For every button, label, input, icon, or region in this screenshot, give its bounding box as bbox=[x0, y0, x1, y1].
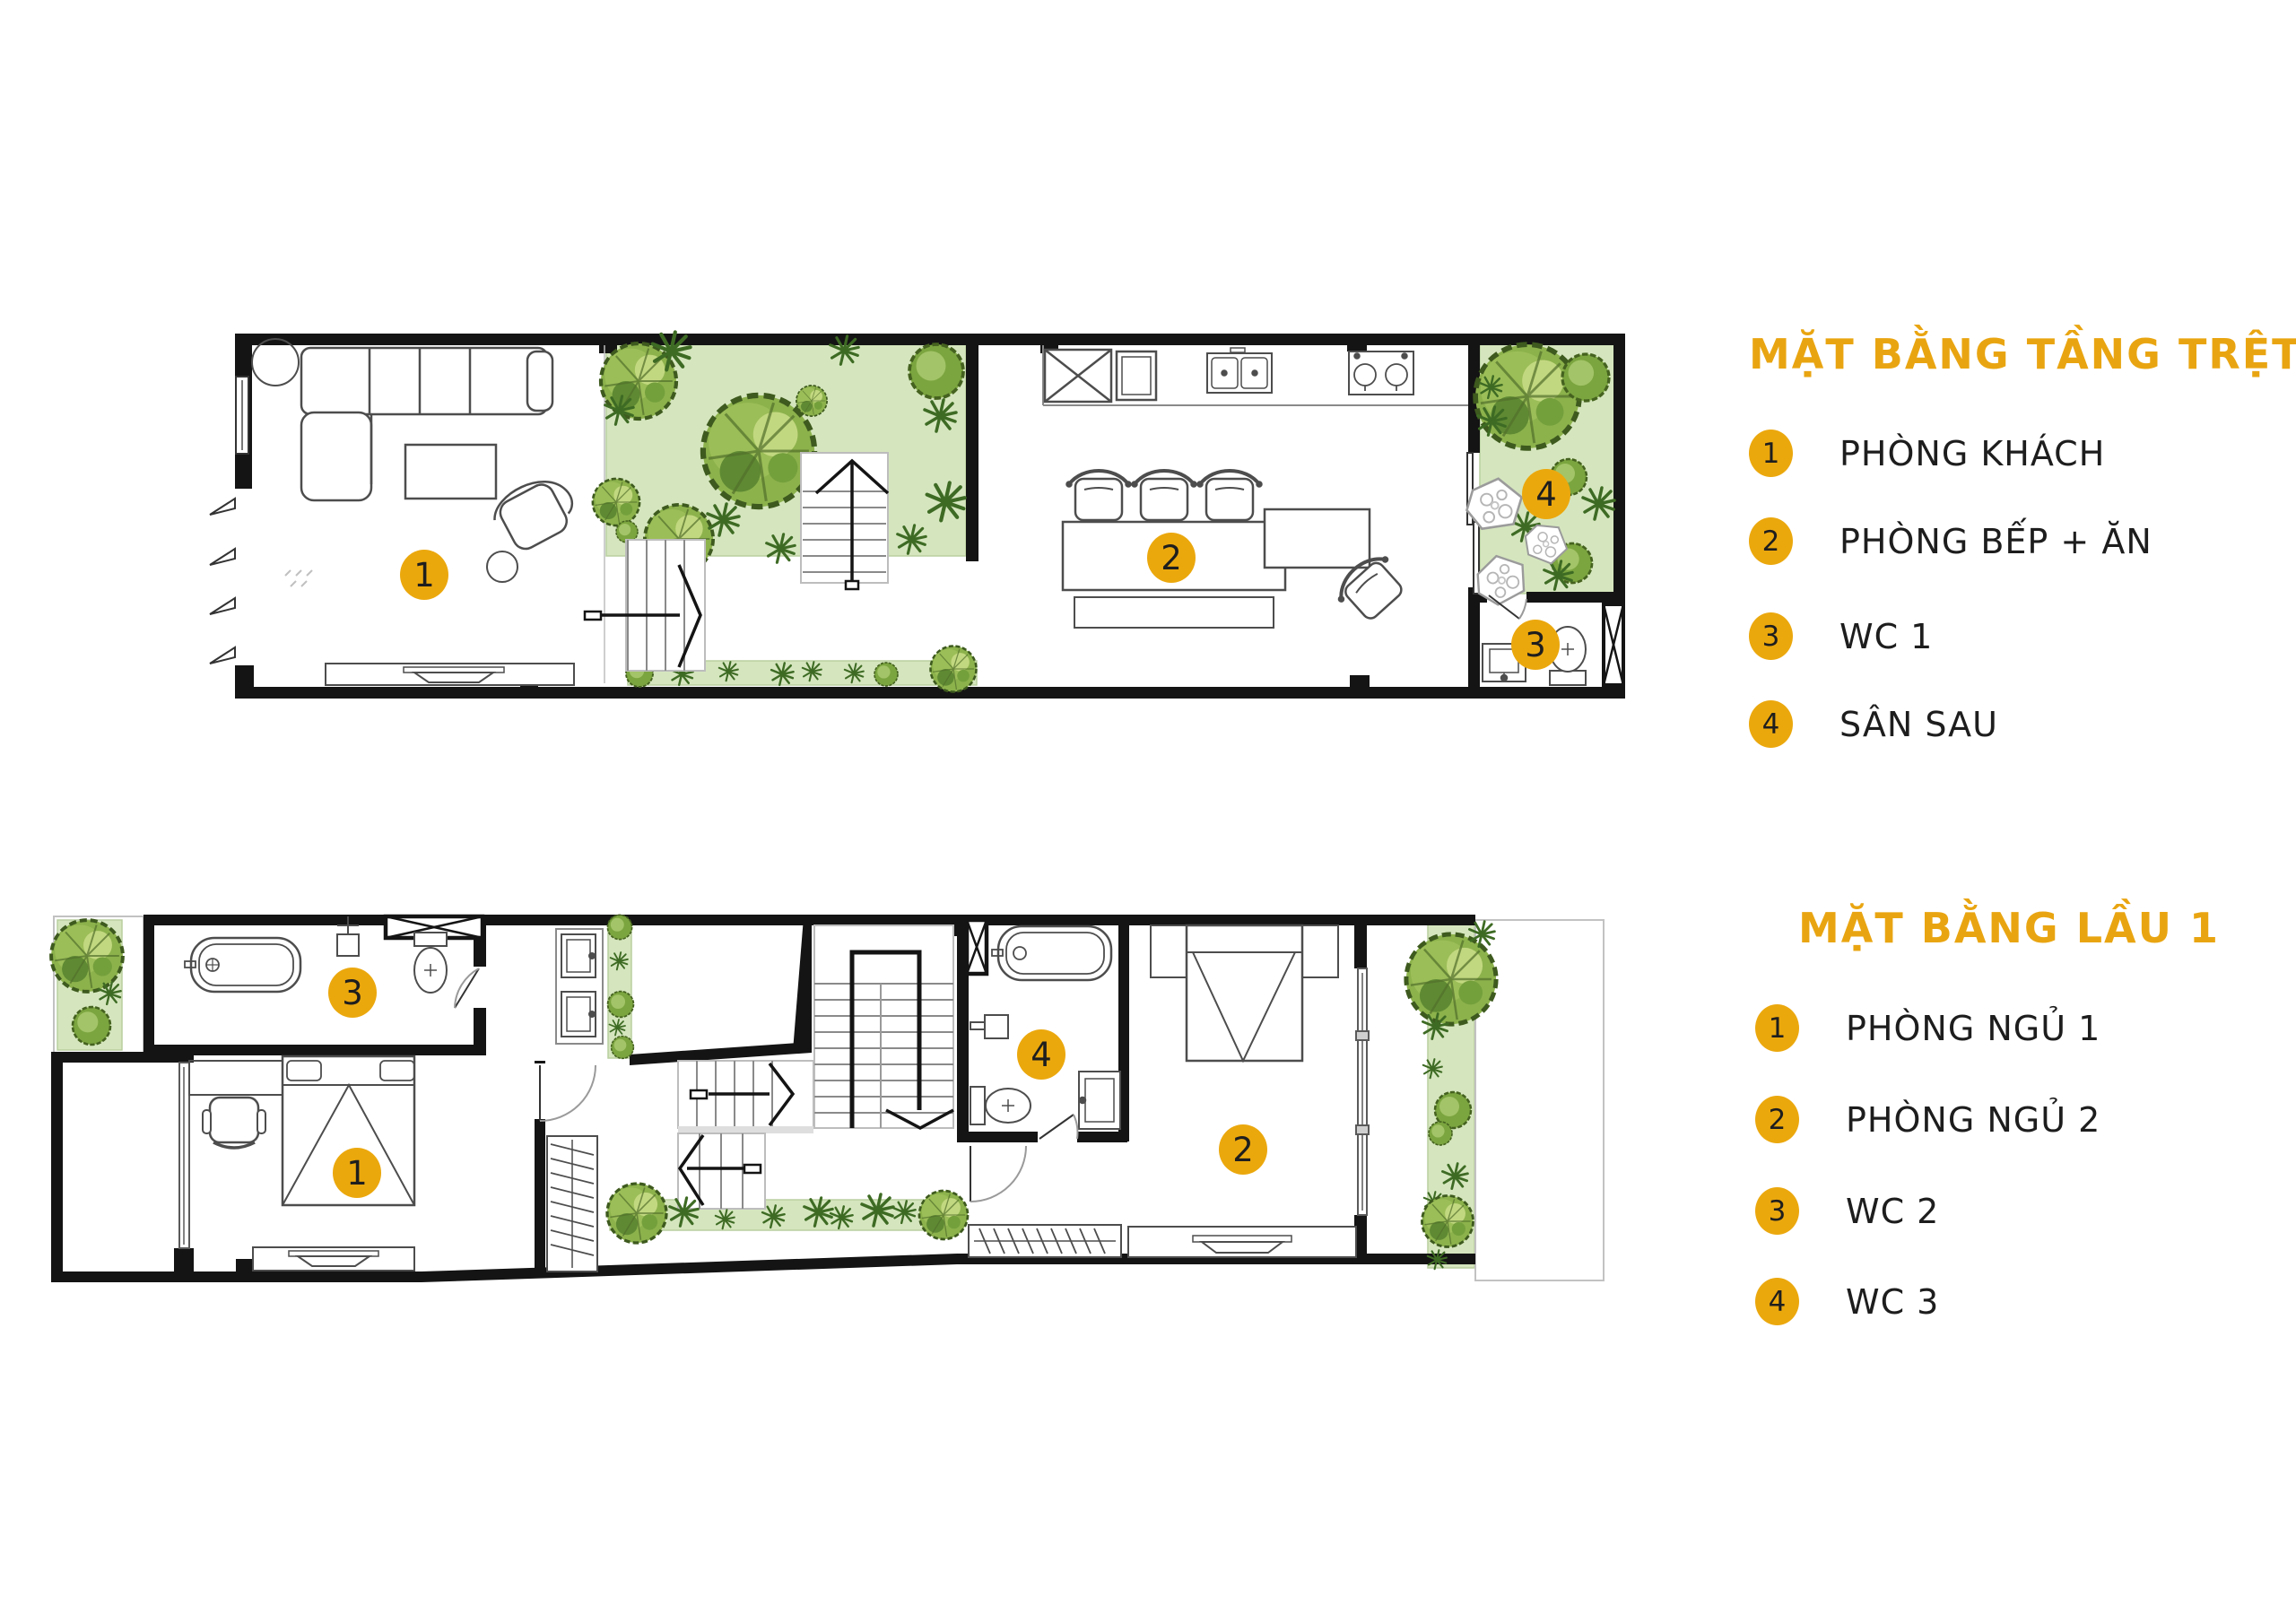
marker-ground-backyard: 4 bbox=[1522, 469, 1570, 519]
legend-item-wc3: 4 WC 3 bbox=[1755, 1278, 1939, 1325]
legend-badge: 4 bbox=[1755, 1278, 1799, 1325]
wc3-door bbox=[1038, 1115, 1077, 1144]
marker-first-wc2: 3 bbox=[328, 968, 377, 1018]
wc2-toilet bbox=[414, 933, 447, 993]
wc2-door bbox=[455, 968, 479, 1008]
living-room bbox=[210, 339, 604, 685]
legend-label: WC 1 bbox=[1839, 617, 1933, 656]
desk-chair bbox=[203, 1098, 265, 1148]
legend-item-wc2: 3 WC 2 bbox=[1755, 1187, 1939, 1235]
wc3-shower bbox=[970, 1015, 1008, 1038]
vent-panel bbox=[1604, 604, 1623, 685]
legend-label: PHÒNG BẾP + ĂN bbox=[1839, 522, 2152, 561]
kitchen-dining bbox=[1043, 345, 1479, 628]
legend-label: PHÒNG NGỦ 2 bbox=[1846, 1100, 2100, 1140]
dining-table bbox=[1063, 509, 1370, 628]
legend-badge: 3 bbox=[1755, 1187, 1799, 1235]
folding-door bbox=[210, 499, 235, 664]
legend-item-phong-khach: 1 PHÒNG KHÁCH bbox=[1749, 430, 2105, 477]
legend-badge: 2 bbox=[1755, 1096, 1799, 1143]
legend-badge: 2 bbox=[1749, 517, 1793, 565]
main-staircase bbox=[814, 925, 953, 1128]
marker-ground-living-room: 1 bbox=[400, 550, 448, 600]
legend-badge: 1 bbox=[1755, 1004, 1799, 1052]
wardrobe1 bbox=[547, 1136, 597, 1271]
legend-label: WC 3 bbox=[1846, 1282, 1939, 1322]
marker-first-bedroom2: 2 bbox=[1219, 1124, 1267, 1175]
fridge bbox=[1045, 350, 1156, 402]
marker-first-bedroom1: 1 bbox=[333, 1148, 381, 1198]
legend-item-phong-ngu-2: 2 PHÒNG NGỦ 2 bbox=[1755, 1096, 2100, 1143]
kitchen-sink bbox=[1207, 348, 1272, 393]
legend-first-title: MẶT BẰNG LẦU 1 bbox=[1798, 904, 2296, 952]
tv-console-1 bbox=[253, 1247, 414, 1271]
stove bbox=[1349, 352, 1413, 395]
legend-label: SÂN SAU bbox=[1839, 705, 1998, 744]
armchair bbox=[487, 469, 583, 557]
first-floor-plan bbox=[51, 915, 1604, 1282]
ground-floor-plan bbox=[210, 332, 1625, 699]
bed2 bbox=[1151, 925, 1338, 1061]
wc3-sink bbox=[1079, 1072, 1120, 1129]
legend-item-wc1: 3 WC 1 bbox=[1749, 612, 1933, 660]
rear-balcony-garden bbox=[1406, 922, 1496, 1270]
legend-ground-title: MẶT BẰNG TẦNG TRỆT bbox=[1749, 330, 2296, 378]
vanity bbox=[556, 929, 603, 1044]
vestibule-door bbox=[970, 1146, 1026, 1202]
legend-badge: 4 bbox=[1749, 700, 1793, 748]
legend-item-phong-bep-an: 2 PHÒNG BẾP + ĂN bbox=[1749, 517, 2152, 565]
legend-item-phong-ngu-1: 1 PHÒNG NGỦ 1 bbox=[1755, 1004, 2100, 1052]
floor-plan-sheet: 1 2 3 4 3 1 4 2 MẶT BẰNG TẦNG TRỆT 1 PHÒ… bbox=[0, 0, 2296, 1623]
marker-first-wc3: 4 bbox=[1017, 1029, 1065, 1080]
legend-ground-floor: MẶT BẰNG TẦNG TRỆT 1 PHÒNG KHÁCH 2 PHÒNG… bbox=[1749, 330, 2296, 760]
tv-console bbox=[326, 664, 574, 685]
legend-label: WC 2 bbox=[1846, 1192, 1939, 1231]
marker-ground-kitchen: 2 bbox=[1147, 533, 1196, 583]
legend-label: PHÒNG NGỦ 1 bbox=[1846, 1009, 2100, 1048]
legend-badge: 3 bbox=[1749, 612, 1793, 660]
wc3-toilet bbox=[970, 1087, 1031, 1124]
tv-console-2 bbox=[1128, 1227, 1356, 1257]
legend-first-floor: MẶT BẰNG LẦU 1 1 PHÒNG NGỦ 1 2 PHÒNG NGỦ… bbox=[1755, 904, 2296, 1352]
wardrobe2 bbox=[969, 1225, 1121, 1257]
bedroom1-door bbox=[535, 1063, 596, 1121]
marker-ground-wc1: 3 bbox=[1511, 620, 1560, 670]
legend-item-san-sau: 4 SÂN SAU bbox=[1749, 700, 1998, 748]
wc2-bathtub bbox=[185, 938, 300, 992]
legend-label: PHÒNG KHÁCH bbox=[1839, 434, 2105, 473]
legend-badge: 1 bbox=[1749, 430, 1793, 477]
plans-drawing bbox=[0, 0, 2296, 1623]
wc3-bathtub bbox=[992, 926, 1111, 980]
hall-stairs bbox=[678, 1061, 813, 1209]
